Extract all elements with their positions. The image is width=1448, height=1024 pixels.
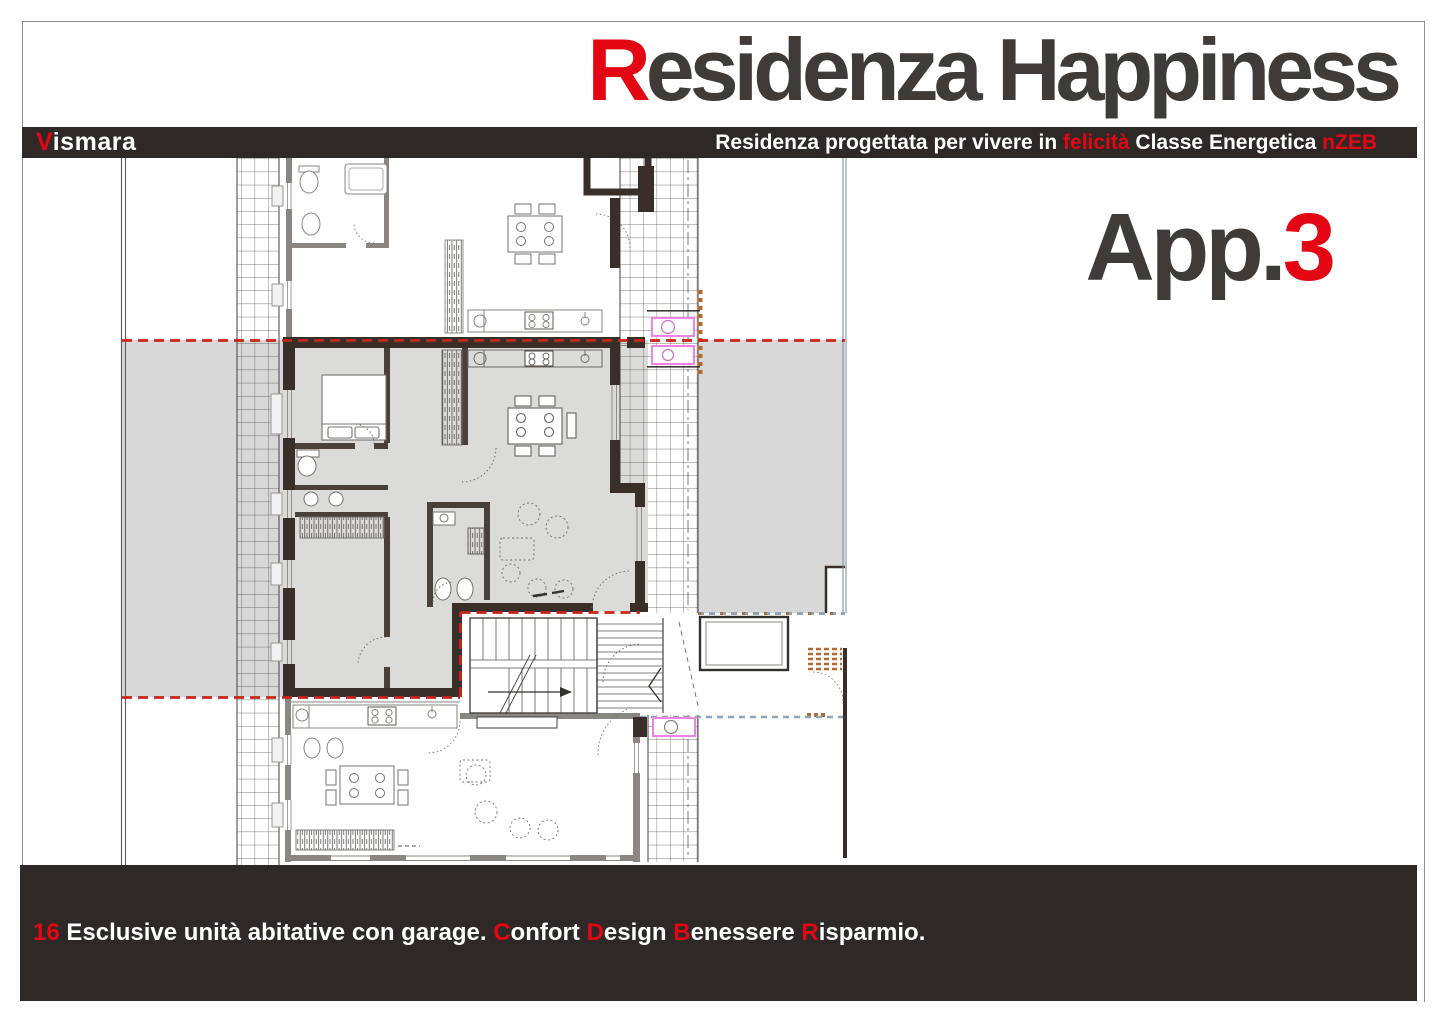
terrace-right [698, 340, 845, 613]
footer-accent-r: R [801, 919, 818, 946]
footer-segment-4: enessere [691, 919, 802, 946]
footer-segment-1: Esclusive unità abitative con garage. [60, 919, 494, 946]
footer-accent-d: D [587, 919, 604, 946]
footer-text: 16 Esclusive unità abitative con garage.… [20, 919, 925, 947]
apartment-label-number: 3 [1283, 194, 1332, 301]
apartment-label: App.3 [1085, 200, 1332, 296]
flyer-page: Residenza Happiness Vismara Residenza pr… [0, 0, 1448, 1024]
footer-accent-b: B [673, 919, 690, 946]
title-accent-letter: R [587, 20, 646, 119]
title-text: esidenza Happiness [646, 20, 1397, 119]
page-frame-left [22, 21, 23, 1000]
footer-segment-3: esign [604, 919, 673, 946]
brand-accent-letter: V [36, 128, 53, 156]
neighbor-unit-bottom [272, 697, 640, 862]
footer-bar: 16 Esclusive unità abitative con garage.… [20, 865, 1417, 1001]
footer-segment-5: isparmio. [819, 919, 926, 946]
elevator [700, 617, 788, 670]
footer-accent-16: 16 [33, 919, 60, 946]
brand-bar: Vismara Residenza progettata per vivere … [22, 127, 1417, 158]
tagline-accent-nzeb: nZEB [1322, 131, 1377, 154]
tagline-text-1: Residenza progettata per vivere in [715, 131, 1063, 154]
brand-name-text: ismara [53, 128, 137, 156]
tagline-accent-felicita: felicità [1063, 131, 1130, 154]
footer-accent-c: C [493, 919, 510, 946]
page-title: Residenza Happiness [587, 24, 1397, 116]
brand-name: Vismara [22, 128, 136, 157]
apartment-label-prefix: App. [1085, 194, 1282, 301]
tagline-text-2: Classe Energetica [1130, 131, 1323, 154]
stairwell [470, 618, 663, 728]
footer-segment-2: onfort [511, 919, 587, 946]
neighbor-unit-top [272, 157, 654, 337]
page-frame-right [1424, 21, 1425, 1002]
tagline: Residenza progettata per vivere in felic… [715, 131, 1417, 155]
